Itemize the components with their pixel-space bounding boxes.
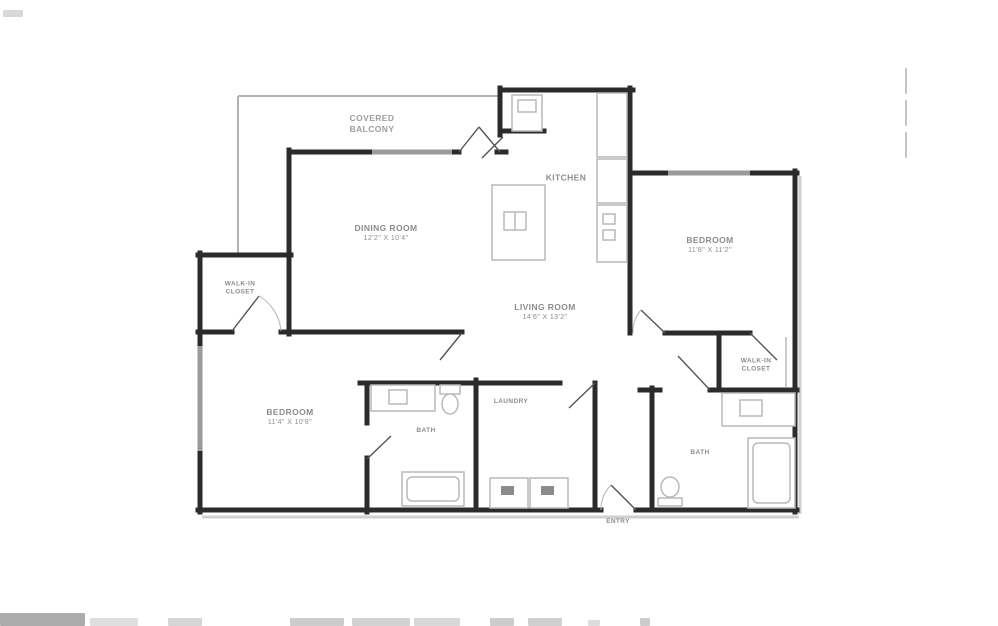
- bedroom1-door: [641, 310, 665, 333]
- utility-room-fixtures: [512, 95, 542, 131]
- bath1-door: [678, 356, 710, 390]
- page-crop-artifact: [168, 618, 202, 626]
- page-crop-artifact: [528, 618, 562, 626]
- page-crop-artifact: [352, 618, 410, 626]
- page-crop-artifact: [414, 618, 460, 626]
- laundry-door: [569, 383, 595, 408]
- floor-plan-drawing: [0, 0, 998, 626]
- bath2-toilet-tank: [440, 385, 460, 394]
- bath2-fixtures: [371, 385, 464, 506]
- entry-label: ENTRY: [606, 518, 630, 526]
- page-crop-artifact: [905, 132, 907, 158]
- wic2-door: [750, 333, 777, 360]
- bedroom2-door: [440, 333, 462, 360]
- page-crop-artifact: [90, 618, 138, 626]
- page-crop-artifact: [290, 618, 344, 626]
- bath1-fixtures: [658, 337, 795, 508]
- bedroom2-label: BEDROOM 11'4" X 10'8": [266, 407, 313, 427]
- page-crop-artifact: [905, 68, 907, 94]
- entry-door: [611, 485, 636, 510]
- bath2-label: BATH: [416, 427, 435, 435]
- page-crop-artifact: [905, 100, 907, 126]
- page-crop-artifact: [640, 618, 650, 626]
- refrigerator: [597, 159, 627, 203]
- walk-in-closet2-label: WALK-IN CLOSET: [741, 358, 772, 375]
- balcony-door: [459, 127, 500, 152]
- page-crop-artifact: [3, 10, 23, 17]
- top-room-door: [482, 137, 503, 158]
- closet1-door: [232, 296, 259, 331]
- utility-sink: [518, 100, 536, 112]
- bath1-toilet-tank: [658, 498, 682, 506]
- bath1-sink: [740, 400, 762, 416]
- page-crop-artifact: [490, 618, 514, 626]
- floor-plan-page: COVERED BALCONY KITCHEN DINING ROOM 12'2…: [0, 0, 998, 626]
- bath1-label: BATH: [690, 449, 709, 457]
- dining-room-label: DINING ROOM 12'2" X 10'4": [355, 223, 418, 243]
- bath2-toilet-bowl: [442, 394, 458, 414]
- laundry-fixtures: [490, 478, 568, 508]
- pantry-counter: [597, 93, 627, 157]
- bath1-toilet-bowl: [661, 477, 679, 497]
- bedroom1-label: BEDROOM 11'8" X 11'2": [686, 235, 733, 255]
- bath2-door: [367, 436, 391, 459]
- page-crop-artifact: [0, 613, 85, 626]
- bath2-sink: [389, 390, 407, 404]
- laundry-label: LAUNDRY: [494, 398, 528, 406]
- kitchen-label: KITCHEN: [546, 172, 587, 183]
- living-room-label: LIVING ROOM 14'6" X 13'2": [514, 302, 576, 322]
- page-crop-artifact: [588, 620, 600, 626]
- walk-in-closet1-label: WALK-IN CLOSET: [225, 281, 256, 298]
- balcony-label: COVERED BALCONY: [350, 113, 395, 135]
